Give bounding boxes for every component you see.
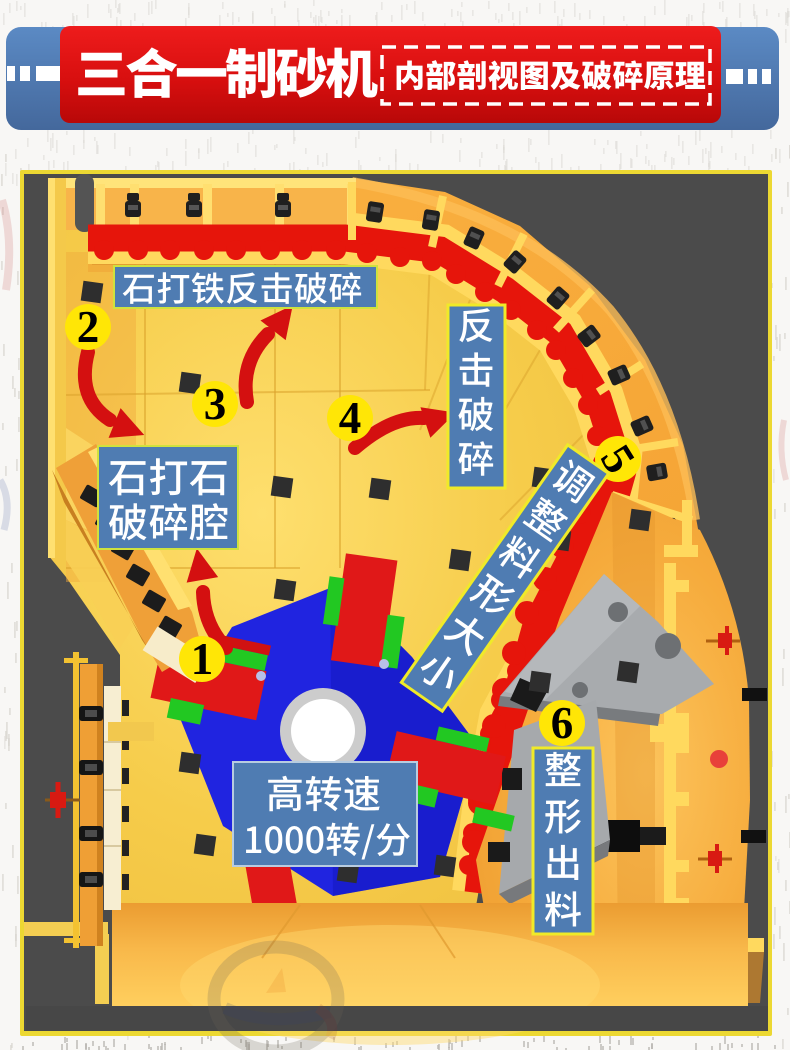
svg-text:3: 3 [204, 379, 227, 429]
svg-text:6: 6 [551, 698, 574, 748]
svg-text:2: 2 [77, 302, 100, 352]
svg-text:1: 1 [191, 634, 214, 684]
svg-text:4: 4 [339, 393, 362, 443]
